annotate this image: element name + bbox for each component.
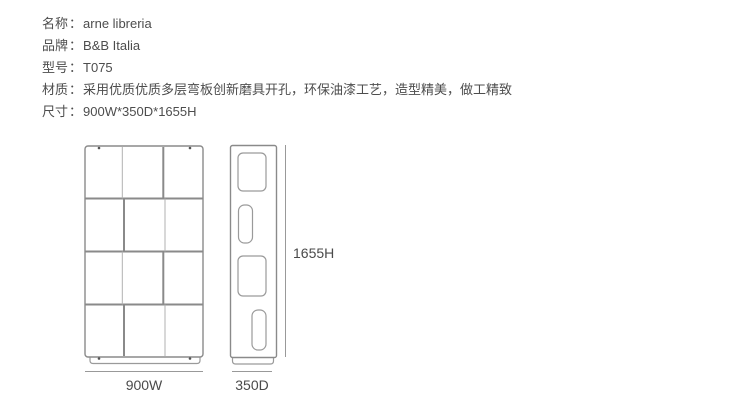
spec-value: 采用优质优质多层弯板创新磨具开孔，环保油漆工艺，造型精美，做工精致 [83, 82, 512, 97]
spec-label: 材质 [42, 82, 68, 97]
spec-label: 型号 [42, 60, 68, 75]
spec-row-brand: 品牌：B&B Italia [42, 35, 512, 57]
height-dimension-label: 1655H [293, 245, 334, 261]
spec-value: T075 [83, 60, 113, 75]
spec-separator: ： [68, 104, 83, 119]
side-plinth [233, 358, 274, 364]
depth-dimension-label: 350D [232, 377, 272, 393]
spec-value: arne libreria [83, 16, 152, 31]
spec-separator: ： [68, 60, 83, 75]
spec-label: 尺寸 [42, 104, 68, 119]
spec-separator: ： [68, 16, 83, 31]
spec-value: B&B Italia [83, 38, 140, 53]
side-body-outline [231, 146, 277, 358]
width-dimension-label: 900W [85, 377, 203, 393]
spec-value: 900W*350D*1655H [83, 104, 196, 119]
product-spec-page: 名称：arne libreria 品牌：B&B Italia 型号：T075 材… [0, 0, 750, 411]
height-dimension-line [285, 145, 286, 357]
spec-label: 品牌 [42, 38, 68, 53]
width-dimension-line [85, 371, 203, 372]
spec-list: 名称：arne libreria 品牌：B&B Italia 型号：T075 材… [42, 13, 512, 123]
front-plinth [90, 358, 200, 364]
side-view-drawing [228, 143, 292, 371]
front-view-drawing [83, 144, 207, 370]
spec-row-material: 材质：采用优质优质多层弯板创新磨具开孔，环保油漆工艺，造型精美，做工精致 [42, 79, 512, 101]
spec-row-name: 名称：arne libreria [42, 13, 512, 35]
depth-dimension-line [232, 371, 272, 372]
spec-row-model: 型号：T075 [42, 57, 512, 79]
spec-label: 名称 [42, 16, 68, 31]
spec-separator: ： [68, 82, 83, 97]
spec-separator: ： [68, 38, 83, 53]
spec-row-dimensions: 尺寸：900W*350D*1655H [42, 101, 512, 123]
